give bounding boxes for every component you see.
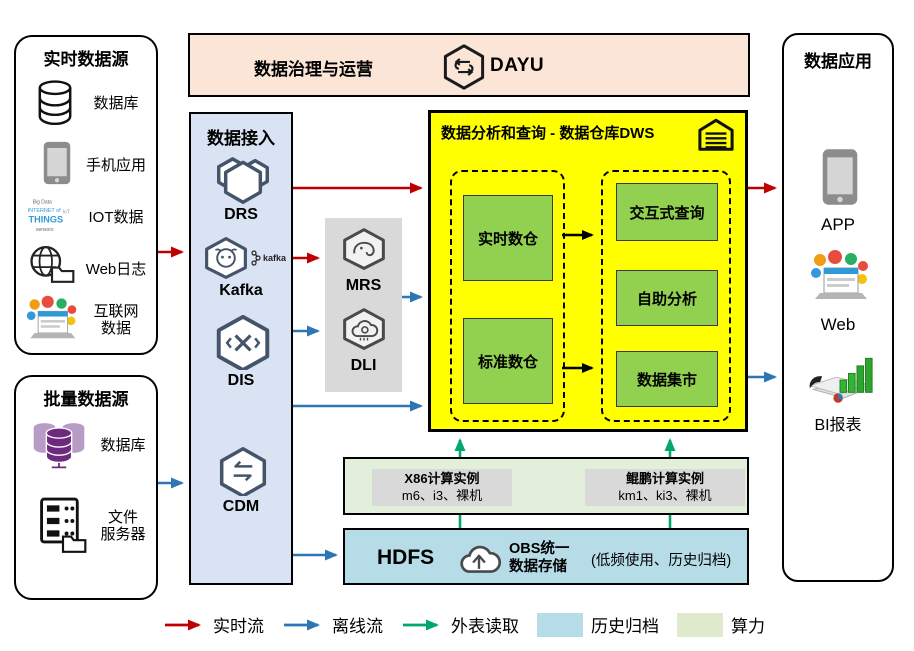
web-collage-icon <box>809 250 871 311</box>
batch-item-label: 文件 服务器 <box>86 509 160 544</box>
legend: 实时流 离线流 外表读取 历史归档 算力 <box>163 612 765 637</box>
interactive-query-node: 交互式查询 <box>616 183 718 241</box>
svg-text:IoT: IoT <box>63 210 70 216</box>
dayu-hexagon-sync-icon <box>442 43 486 96</box>
dayu-label: DAYU <box>490 55 544 77</box>
ingestion-panel: 数据接入 DRS <box>189 112 293 585</box>
database-icon <box>36 79 74 130</box>
self-service-analysis-node: 自助分析 <box>616 270 718 326</box>
compute-panel: X86计算实例 m6、i3、裸机 鲲鹏计算实例 km1、ki3、裸机 <box>343 457 749 515</box>
app-phone-icon <box>820 147 860 212</box>
mrs-icon <box>341 227 387 276</box>
mrs-label: MRS <box>346 276 382 297</box>
archive-swatch <box>537 613 583 637</box>
standard-warehouse-node: 标准数仓 <box>463 318 553 404</box>
file-server-icon <box>38 495 88 560</box>
blue-arrow-icon <box>282 618 324 632</box>
x86-instance-box: X86计算实例 m6、i3、裸机 <box>372 469 512 506</box>
batch-sources-title: 批量数据源 <box>16 385 156 410</box>
legend-item-archive: 历史归档 <box>537 612 659 637</box>
compute-swatch <box>677 613 723 637</box>
kafka-icon <box>203 236 249 285</box>
mobile-phone-icon <box>42 139 72 192</box>
bi-report-label: BI报表 <box>784 411 892 435</box>
apps-panel: 数据应用 APP Web <box>782 33 894 582</box>
legend-item-compute: 算力 <box>677 612 765 637</box>
hdfs-label: HDFS <box>377 546 434 570</box>
app-label: APP <box>784 215 892 235</box>
legend-item-offline: 离线流 <box>282 612 383 637</box>
web-label: Web <box>784 315 892 335</box>
svg-text:sensors: sensors <box>36 227 54 233</box>
batch-item-label: 数据库 <box>88 437 158 454</box>
dli-icon <box>341 307 387 356</box>
svg-text:THINGS: THINGS <box>29 215 64 225</box>
dis-icon <box>214 314 272 375</box>
kafka-logo-badge: kafka <box>251 250 286 266</box>
realtime-item-label: 互联网 数据 <box>74 303 158 338</box>
green-arrow-icon <box>401 618 443 632</box>
realtime-warehouse-node: 实时数仓 <box>463 195 553 281</box>
kunpeng-instance-box: 鲲鹏计算实例 km1、ki3、裸机 <box>585 469 745 506</box>
batch-sources-panel: 批量数据源 数据库 <box>14 375 158 600</box>
realtime-sources-title: 实时数据源 <box>16 45 156 70</box>
legend-item-realtime: 实时流 <box>163 612 264 637</box>
governance-banner: 数据治理与运营 DAYU <box>188 33 750 97</box>
globe-folder-icon <box>28 243 76 290</box>
legend-item-external-read: 外表读取 <box>401 612 519 637</box>
data-mart-node: 数据集市 <box>616 351 718 407</box>
realtime-item-label: 手机应用 <box>74 157 158 174</box>
governance-title: 数据治理与运营 <box>254 55 373 80</box>
dis-label: DIS <box>191 372 291 390</box>
dli-label: DLI <box>351 356 377 377</box>
cdm-label: CDM <box>191 498 291 516</box>
storage-panel: HDFS OBS统一 数据存储 (低频使用、历史归档) <box>343 528 749 585</box>
realtime-item-label: Web日志 <box>74 261 158 278</box>
processing-panel: MRS DLI <box>325 218 402 392</box>
drs-label: DRS <box>191 206 291 224</box>
warehouse-icon <box>695 117 737 158</box>
kafka-label: Kafka <box>191 282 291 300</box>
ingestion-title: 数据接入 <box>191 124 291 149</box>
iot-wordcloud-icon: Big Data INTERNET of THINGS sensors IoT <box>26 195 76 242</box>
dws-panel: 数据分析和查询 - 数据仓库DWS 实时数仓 标准数仓 交互式查询 自助分析 数… <box>428 110 748 432</box>
cdm-icon <box>217 446 269 501</box>
obs-cloud-upload-icon <box>455 539 503 582</box>
realtime-item-label: 数据库 <box>74 95 158 112</box>
realtime-item-label: IOT数据 <box>74 209 158 226</box>
obs-label: OBS统一 数据存储 <box>509 540 569 576</box>
svg-text:INTERNET of: INTERNET of <box>28 208 61 214</box>
drs-icon <box>215 152 271 209</box>
internet-collage-icon <box>26 295 78 350</box>
bi-report-icon <box>806 355 874 412</box>
architecture-diagram: 实时数据源 数据库 手机应用 Big Data INTERNET of THIN… <box>0 0 914 651</box>
realtime-sources-panel: 实时数据源 数据库 手机应用 Big Data INTERNET of THIN… <box>14 35 158 355</box>
apps-title: 数据应用 <box>784 47 892 72</box>
dws-title: 数据分析和查询 - 数据仓库DWS <box>441 122 654 143</box>
storage-note: (低频使用、历史归档) <box>591 549 731 570</box>
red-arrow-icon <box>163 618 205 632</box>
svg-text:Big Data: Big Data <box>33 200 52 206</box>
purple-database-icon <box>28 415 90 476</box>
